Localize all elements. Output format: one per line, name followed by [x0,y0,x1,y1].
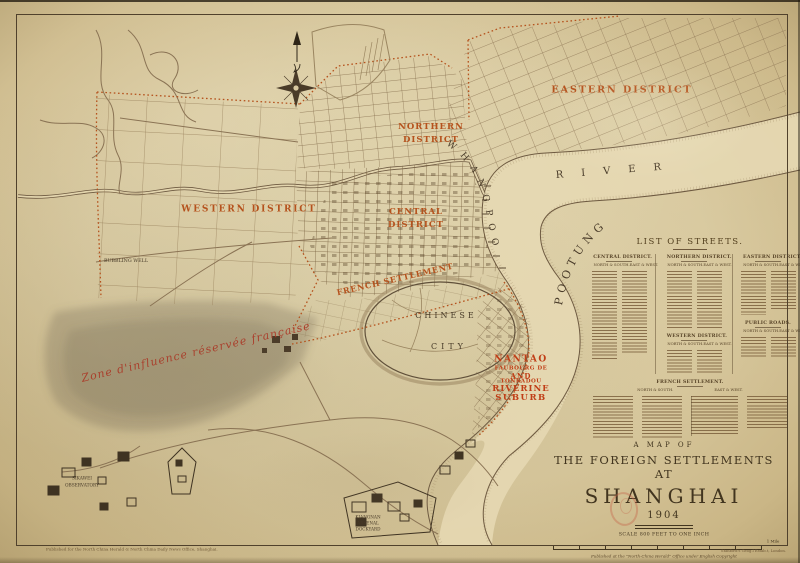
subheader-east-west: EAST & WEST. [714,388,742,392]
streets-column-northern: NORTHERN DISTRICT. NORTH & SOUTH. EAST &… [656,254,733,374]
subheader-north-south: NORTH & SOUTH. [637,388,673,392]
title-line-year: 1904 [549,510,779,521]
label-central-district-line1: CENTRAL [389,208,443,217]
title-line-foreign-settlements: THE FOREIGN SETTLEMENTS AT [549,453,779,481]
sikawei-buildings [48,448,196,510]
subheader-north-south: NORTH & SOUTH. [594,263,630,267]
streets-panel-title: LIST OF STREETS. [583,237,797,247]
subheader-north-south: NORTH & SOUTH. [743,329,779,333]
street-list-column [622,271,647,353]
scale-tick [605,546,606,550]
section-subheaders: NORTH & SOUTH. EAST & WEST. [667,342,720,346]
label-northern-district-line1: NORTHERN [398,123,464,132]
scale-tick [579,546,580,550]
subheader-north-south: NORTH & SOUTH. [667,263,703,267]
streets-section-french: FRENCH SETTLEMENT. NORTH & SOUTH. EAST &… [583,379,797,438]
label-chinese-city-line1: CHINESE [415,312,476,320]
streets-column-central: CENTRAL DISTRICT. NORTH & SOUTH. EAST & … [583,254,656,374]
engraver-imprint-right: Stanford's Geog.l Estab.t, London. [718,549,786,553]
section-subheaders: NORTH & SOUTH. EAST & WEST. [743,263,793,267]
section-rule [755,327,781,328]
title-line-shanghai: SHANGHAI [549,484,779,508]
map-title-block: A MAP OF THE FOREIGN SETTLEMENTS AT SHAN… [549,441,779,560]
section-subheaders: NORTH & SOUTH. EAST & WEST. [619,388,762,392]
street-list-columns [736,337,800,357]
subheader-north-south: NORTH & SOUTH. [667,342,703,346]
label-arsenal-line2: ARSENAL [357,522,379,526]
subheader-north-south: NORTH & SOUTH. [743,263,779,267]
street-list-column [741,337,766,357]
street-list-column [697,350,722,374]
street-list-columns [659,271,729,329]
list-of-streets-panel: LIST OF STREETS. CENTRAL DISTRICT. NORTH… [583,237,797,438]
subheader-east-west: EAST & WEST. [779,263,800,267]
street-list-column [771,337,796,357]
label-bubbling-well: BUBBLING WELL [104,259,148,264]
street-list-column [697,271,722,329]
section-subheaders: NORTH & SOUTH. EAST & WEST. [667,263,720,267]
section-title-french: FRENCH SETTLEMENT. [607,379,774,384]
street-list-column [592,271,617,359]
street-list-columns [583,396,797,438]
label-sikawei-line1: SIKAWEI [72,477,92,481]
section-rule [681,261,707,262]
scale-tick [631,546,632,550]
section-title-western: WESTERN DISTRICT. [667,333,722,338]
map-sheet: POOTUNG WHANGPOO RIVER EASTERN DISTRICT … [0,0,800,563]
street-list-column [691,396,738,436]
label-arsenal-line3: DOCKYARD [355,528,380,532]
french-zone-shading [44,300,318,431]
subheader-east-west: EAST & WEST. [630,263,658,267]
label-northern-district-line2: DISTRICT [403,136,459,145]
streets-panel-rule [673,249,707,250]
north-arrow-icon [293,31,301,72]
scale-note: SCALE 800 FEET TO ONE INCH [572,532,756,538]
street-list-column [642,396,682,438]
section-title-northern: NORTHERN DISTRICT. [667,254,722,259]
scale-tick [657,546,658,550]
streets-columns: CENTRAL DISTRICT. NORTH & SOUTH. EAST & … [583,254,797,374]
label-sikawei-line2: OBSERVATORY [65,484,99,488]
scale-tick [553,546,554,550]
streets-column-eastern: EASTERN DISTRICT. NORTH & SOUTH. EAST & … [733,254,800,374]
subheader-east-west: EAST & WEST. [779,329,800,333]
scale-tick [709,546,710,550]
label-western-district: WESTERN DISTRICT [181,206,316,215]
label-chinese-city-line2: CITY [431,343,467,351]
street-list-column [667,350,692,374]
section-rule [681,340,707,341]
scale-tick [683,546,684,550]
label-arsenal-line1: KIANGNAN [355,516,380,520]
street-list-columns [736,271,800,315]
scale-end-label: 1 Mile [766,539,779,544]
subheader-east-west: EAST & WEST. [703,263,731,267]
section-title-central: CENTRAL DISTRICT. [593,254,644,259]
photo-edge-bottom [0,557,800,563]
section-rule [606,261,632,262]
publisher-imprint-left: Published for the North China Herald & N… [46,547,218,552]
subheader-east-west: EAST & WEST. [703,342,731,346]
title-line-a-map-of: A MAP OF [549,441,779,449]
street-list-columns [659,350,729,374]
section-subheaders: NORTH & SOUTH. EAST & WEST. [743,329,793,333]
library-stamp-inner [620,498,632,514]
street-list-column [747,396,787,430]
label-central-district-line2: DISTRICT [388,221,444,230]
street-list-column [771,271,796,311]
section-rule [677,386,703,387]
label-suburb: SUBURB [495,394,546,403]
street-list-column [741,271,766,315]
label-eastern-district: EASTERN DISTRICT [551,85,692,95]
section-title-eastern: EASTERN DISTRICT. [743,254,793,259]
section-rule [755,261,781,262]
street-list-column [593,396,633,438]
western-district-grid [96,94,316,306]
title-rule [635,525,693,529]
photo-edge-top [0,0,800,2]
northern-district-grid [297,56,468,169]
section-subheaders: NORTH & SOUTH. EAST & WEST. [594,263,645,267]
street-list-column [667,271,692,329]
section-title-public-roads: PUBLIC ROADS. [743,320,793,325]
street-list-columns [586,271,652,359]
label-nantao: NANTAO [494,356,547,365]
